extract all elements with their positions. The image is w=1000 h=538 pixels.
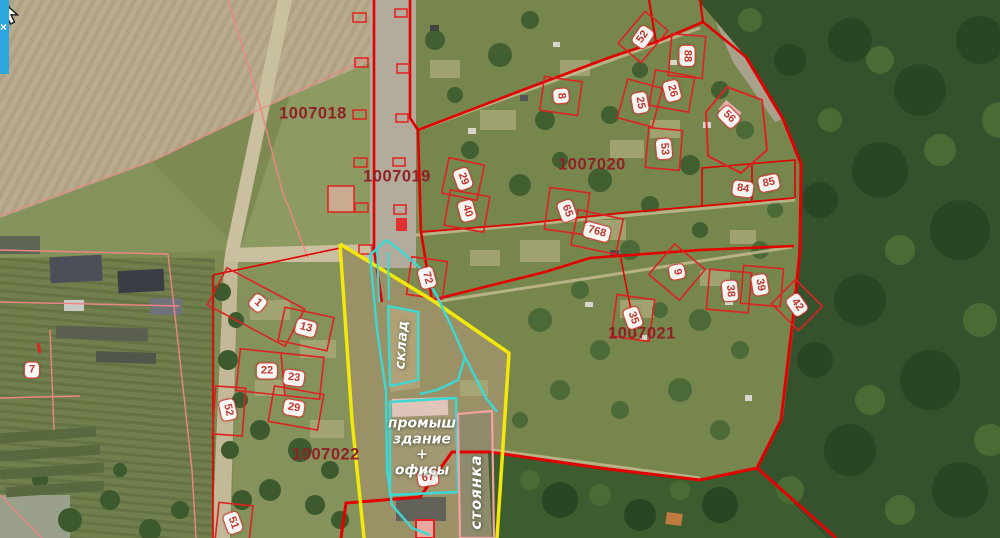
map-viewport[interactable]: 10070181007019100702010070211007022 5288… [0,0,1000,538]
zone-label-building: промыш здание + офисы [388,417,456,480]
zone-label-building-line4: офисы [388,464,456,480]
zone-label-sklad: склад [392,320,411,370]
zone-label-stoyanka: стоянка [467,454,485,529]
close-icon: × [0,20,7,34]
zone-label-building-line2: здание [388,432,456,448]
zone-label-building-line3: + [388,448,456,464]
close-panel-button[interactable]: × [0,0,9,74]
zone-label-layer: склад промыш здание + офисы стоянка [0,0,1000,538]
zone-label-building-line1: промыш [388,417,456,433]
